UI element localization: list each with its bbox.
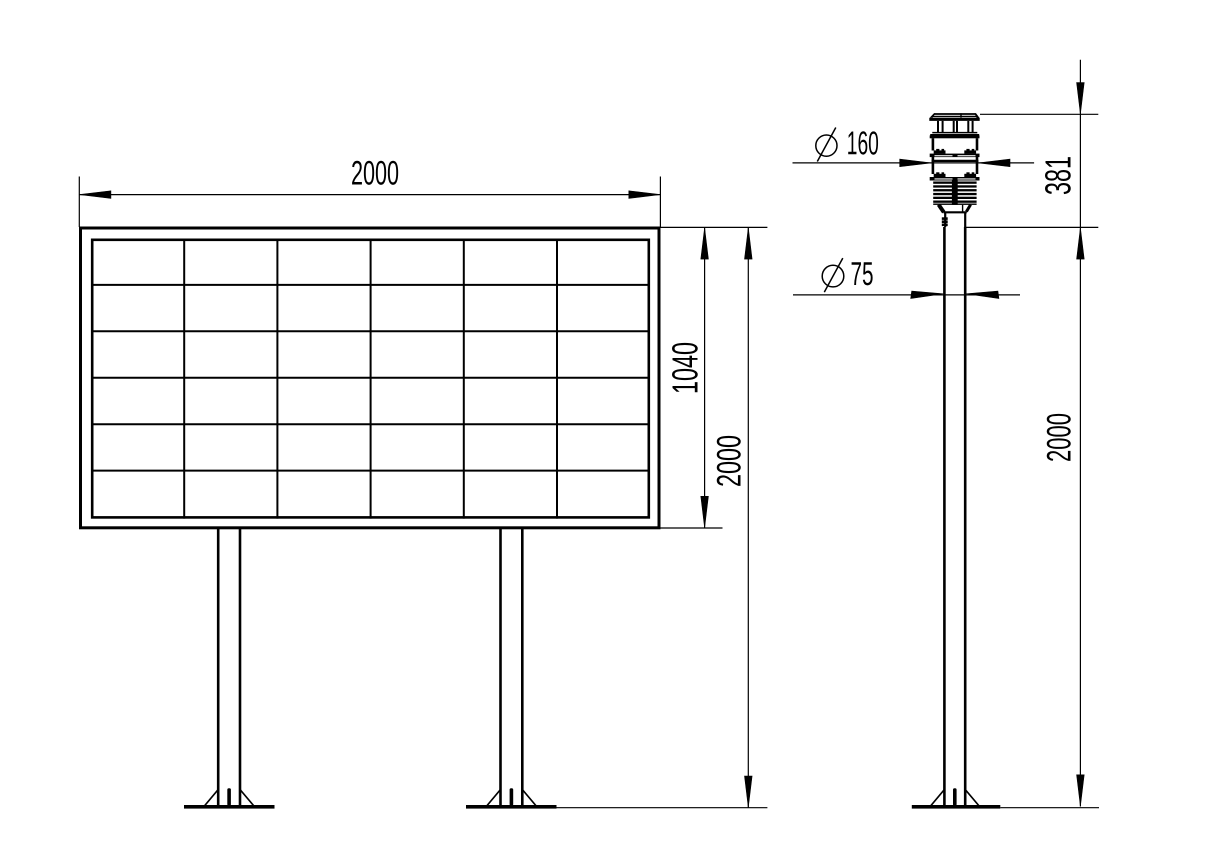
svg-text:75: 75	[850, 255, 873, 292]
svg-text:1040: 1040	[665, 342, 706, 394]
svg-text:160: 160	[847, 124, 879, 161]
svg-text:381: 381	[1038, 156, 1079, 195]
svg-text:2000: 2000	[351, 155, 399, 193]
svg-text:2000: 2000	[710, 435, 748, 487]
svg-text:2000: 2000	[1040, 413, 1078, 462]
